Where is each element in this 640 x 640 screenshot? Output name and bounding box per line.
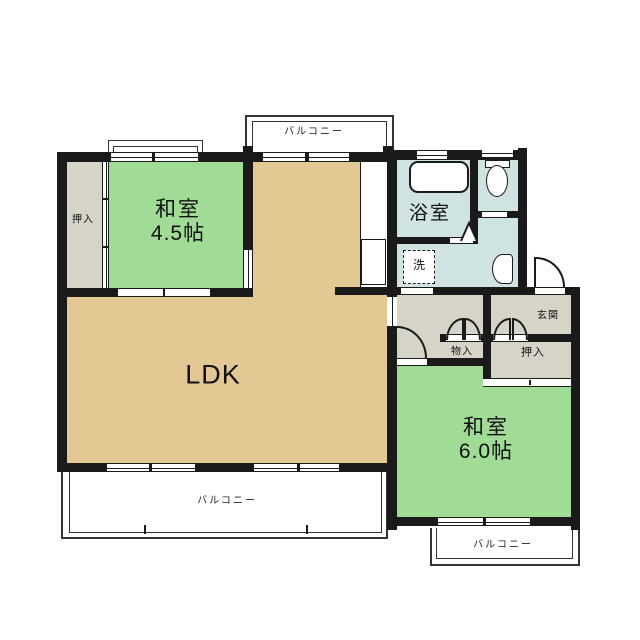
wall xyxy=(571,287,580,530)
wall xyxy=(57,152,67,472)
ldk-hall-opening xyxy=(387,297,397,326)
folding-door-icon xyxy=(457,219,481,243)
window xyxy=(155,153,198,161)
kitchen-counter xyxy=(361,239,386,285)
toilet-door-opening xyxy=(482,212,507,217)
closet-door-leaf xyxy=(512,318,514,340)
washitsu-door-opening xyxy=(397,359,427,365)
window xyxy=(107,464,149,471)
room-opening xyxy=(244,250,252,288)
toilet-lower-floor xyxy=(478,218,518,244)
window xyxy=(152,464,195,471)
wash-basin xyxy=(492,254,513,284)
entrance-door-swing xyxy=(536,257,565,287)
fusuma-tick xyxy=(103,246,108,248)
balcony-right-label: バルコニー xyxy=(473,539,533,551)
balcony-main-label: バルコニー xyxy=(197,495,257,507)
balcony-divider xyxy=(306,525,308,534)
ldk-label: LDK xyxy=(185,359,241,390)
entrance-opening xyxy=(535,288,565,294)
genkan-label: 玄関 xyxy=(537,310,559,322)
window xyxy=(300,464,339,471)
closet-slider-tick xyxy=(529,380,531,385)
window xyxy=(482,149,513,157)
window xyxy=(438,518,483,525)
closet-door-leaf xyxy=(509,318,511,340)
window xyxy=(417,151,447,159)
washitsu-45-label: 和室 4.5帖 xyxy=(151,198,205,246)
wall-door-leaf xyxy=(387,326,397,366)
wall xyxy=(387,517,580,526)
window xyxy=(486,518,530,525)
closet-right-label: 押入 xyxy=(521,347,545,360)
bathroom-label: 浴室 xyxy=(409,203,451,225)
door-opening xyxy=(401,288,433,294)
laundry-label: 洗 xyxy=(413,259,425,273)
fusuma-tick xyxy=(103,198,108,200)
window xyxy=(309,153,349,161)
wall xyxy=(387,366,397,530)
balcony-top-label: バルコニー xyxy=(284,126,344,138)
wall xyxy=(518,148,527,295)
window xyxy=(254,464,297,471)
closet-sliding-doors xyxy=(483,378,571,387)
sliding-door-tick xyxy=(163,289,165,296)
toilet-bowl xyxy=(486,165,508,197)
storage-label: 物入 xyxy=(451,346,473,358)
storage-door-leaf xyxy=(464,318,466,340)
closet-left-label: 押入 xyxy=(72,214,94,226)
fusuma-slider xyxy=(102,162,109,288)
window xyxy=(111,153,152,161)
window xyxy=(263,153,305,161)
floor-plan: 和室 4.5帖 LDK 浴室 和室 6.0帖 押入 押入 物入 玄関 洗 バルコ… xyxy=(0,0,640,640)
washitsu-60-label: 和室 6.0帖 xyxy=(459,416,513,464)
bathtub xyxy=(409,161,469,193)
wall xyxy=(387,150,397,297)
balcony-divider xyxy=(144,525,146,534)
